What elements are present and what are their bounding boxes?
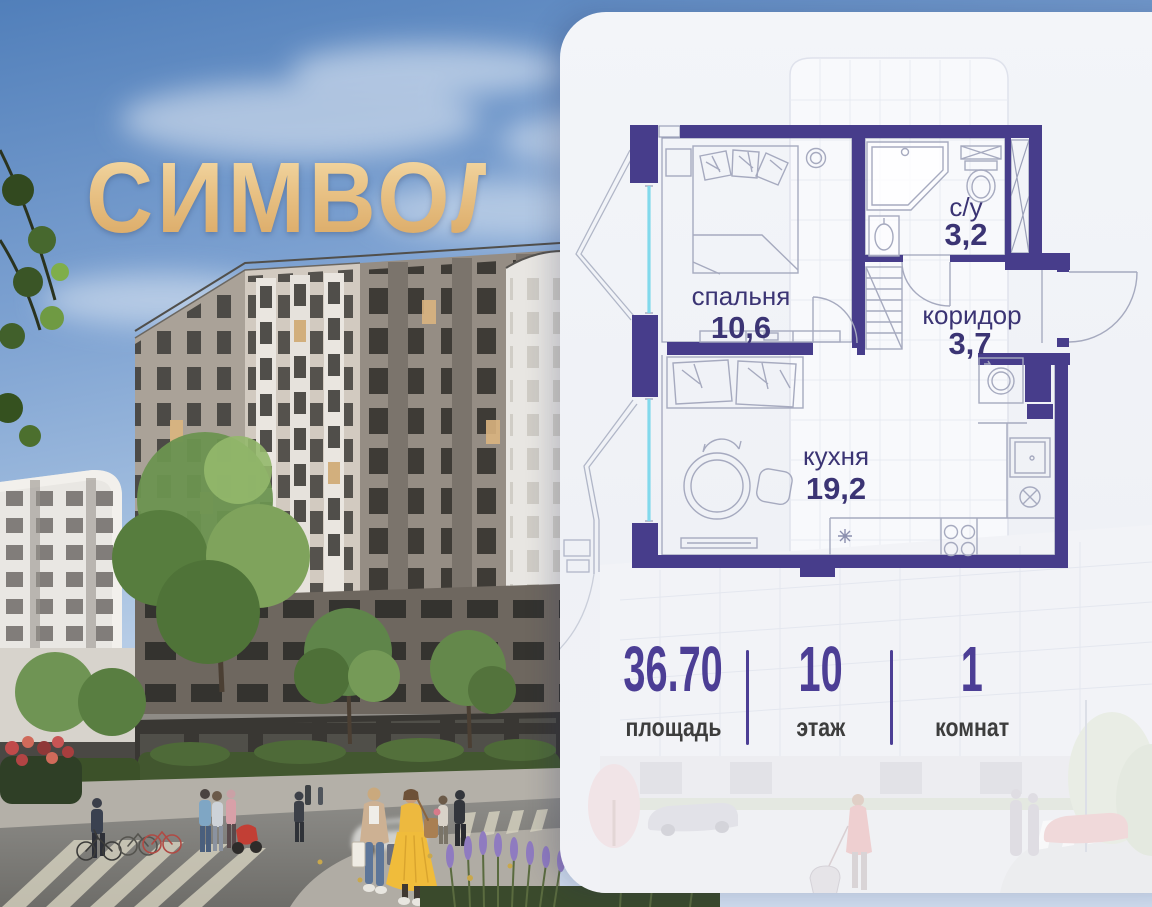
area-value: 36.70 xyxy=(623,634,722,704)
dining-table-icon xyxy=(684,439,794,519)
stats-divider xyxy=(746,650,749,745)
light-symbol xyxy=(838,529,852,543)
underlay-car xyxy=(648,803,738,836)
brand-logo: СИМВОЛ xyxy=(86,148,486,248)
rooms-label: комнат xyxy=(935,712,1009,743)
distant-walker-head xyxy=(295,792,304,801)
area-label: площадь xyxy=(625,712,721,743)
nightstand-icon xyxy=(666,149,691,176)
floor-value: 10 xyxy=(798,634,842,704)
entry-door xyxy=(1069,272,1137,342)
floor-label: этаж xyxy=(796,712,845,743)
bathroom-sink-icon xyxy=(869,216,899,256)
stat-area: 36.70 площадь xyxy=(578,634,768,743)
rooms-value: 1 xyxy=(961,634,983,704)
sofa-icon xyxy=(667,357,803,408)
bed-icon xyxy=(693,146,798,274)
kitchen-sink-icon xyxy=(1020,487,1040,507)
stat-rooms: 1 комнат xyxy=(892,634,1052,743)
room-area-corridor: 3,7 xyxy=(948,326,991,361)
room-label-kitchen: кухня xyxy=(803,441,869,471)
bench-icon xyxy=(681,538,757,548)
room-label-bedroom: спальня xyxy=(692,281,791,311)
room-area-bedroom: 10,6 xyxy=(711,310,771,345)
info-panel: спальня 10,6 с/у 3,2 коридор 3,7 кухня 1… xyxy=(560,12,1152,893)
fridge-icon xyxy=(1010,438,1050,477)
apartment-listing-card[interactable]: СИМВОЛ xyxy=(0,0,1152,907)
room-area-kitchen: 19,2 xyxy=(806,471,866,506)
room-area-bathroom: 3,2 xyxy=(944,217,987,252)
stat-floor: 10 этаж xyxy=(758,634,883,743)
apartment-stats: 36.70 площадь 10 этаж 1 комнат xyxy=(560,634,1090,774)
